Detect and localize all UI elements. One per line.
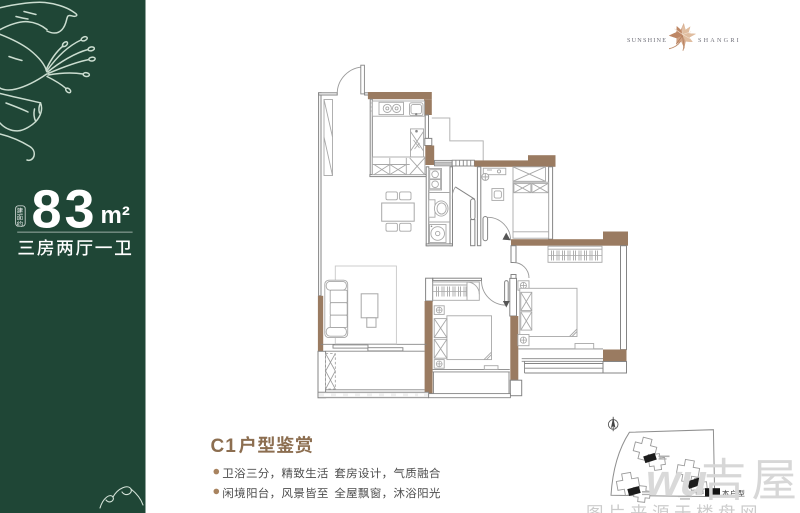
svg-text:wu: wu	[646, 456, 707, 505]
svg-text:SUNSHINE: SUNSHINE	[627, 37, 667, 44]
svg-text:83: 83	[32, 179, 98, 239]
svg-text:m²: m²	[101, 202, 130, 229]
svg-text:C1: C1	[211, 436, 237, 457]
svg-text:SHANGRI: SHANGRI	[698, 37, 741, 44]
